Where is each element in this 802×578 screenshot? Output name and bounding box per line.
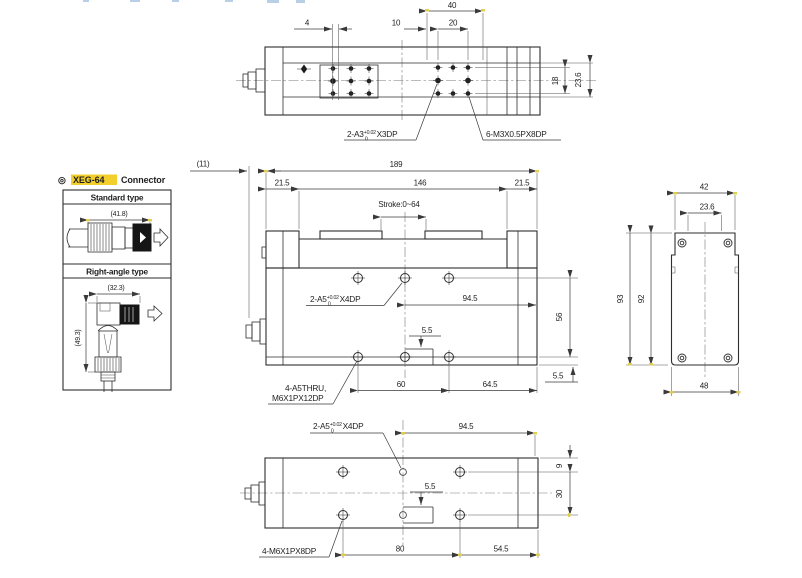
top-view: 40 4 10 20 18 23.6 2-A3+0.020X3DP 6-M3X0… [236,1,598,143]
bottom-view: 2-A5+0.020X4DP 94.5 9 30 5.5 80 54.5 4-M… [240,420,578,558]
dim-4: 4 [305,19,310,28]
technical-drawing: 40 4 10 20 18 23.6 2-A3+0.020X3DP 6-M3X0… [0,0,802,578]
front-view: (11) 189 21.5 146 21.5 Stroke:0~64 [190,160,578,405]
label-tapped-holes-m6: 4-M6X1PX8DP [262,546,317,556]
dim-18: 18 [551,76,560,85]
dim-42: 42 [700,183,709,192]
dim-54-5: 54.5 [494,545,510,554]
standard-connector-drawing: (41.8) [67,211,168,252]
double-circle-icon: ◎ [58,175,66,185]
side-view: 42 23.6 93 92 48 [616,183,739,397]
dim-21-5-left: 21.5 [275,179,291,188]
dim-49-3: (49.3) [75,329,82,346]
dim-9: 9 [555,463,564,468]
bottom-holes [336,465,467,522]
connector-panel: ◎ XEG-64 Connector Standard type (41.8) … [58,175,171,393]
drawing-canvas: 40 4 10 20 18 23.6 2-A3+0.020X3DP 6-M3X0… [0,0,802,578]
label-tapped-holes-m3: 6-M3X0.5PX8DP [486,129,547,139]
dim-5-5-bottom: 5.5 [425,482,436,491]
label-thru-holes-line1: 4-A5THRU, [285,383,326,393]
dim-48: 48 [700,382,709,391]
dim-40: 40 [448,1,457,10]
dim-5-5-front: 5.5 [422,326,433,335]
dim-56: 56 [555,312,564,321]
dim-92: 92 [637,294,646,303]
dim-94-5-bottom: 94.5 [459,422,475,431]
dim-21-5-right: 21.5 [515,179,531,188]
dim-5-5-front-right: 5.5 [553,372,564,381]
dim-30: 30 [555,489,564,498]
dim-10: 10 [392,19,401,28]
front-holes [351,271,456,364]
dim-80: 80 [396,545,405,554]
direction-arrow-icon [148,306,162,321]
side-connector-stub-bottom [245,482,265,505]
dim-189: 189 [390,160,403,169]
dim-11: (11) [197,160,210,169]
dim-60: 60 [397,380,406,389]
standard-type-header: Standard type [91,193,144,203]
dim-64-5: 64.5 [483,380,499,389]
dim-20: 20 [449,19,458,28]
dim-94-5-front: 94.5 [463,294,479,303]
right-angle-type-header: Right-angle type [86,267,148,277]
dim-146: 146 [414,179,427,188]
panel-title-rest: Connector [121,175,166,185]
dim-23-6-side: 23.6 [700,203,716,212]
label-dowel-holes-a3: 2-A3+0.020X3DP [347,129,398,143]
dim-41-8: (41.8) [110,211,127,218]
label-thru-holes-line2: M6X1PX12DP [272,393,324,403]
panel-title-model: XEG-64 [73,175,105,185]
side-connector-stub-front [246,319,266,344]
carriage-hole-pattern [328,64,374,98]
right-angle-connector-drawing: (32.3) (49.3) [75,285,162,392]
yellow-endpoint-ticks [86,9,741,556]
dim-32-3: (32.3) [107,285,124,292]
dim-23-6-top: 23.6 [574,72,583,88]
label-dowel-holes-a5-bottom: 2-A5+0.020X4DP [313,421,364,435]
cropped-header-artifact [83,0,305,3]
stroke-label: Stroke:0~64 [378,200,420,209]
direction-arrow-icon [154,229,168,246]
dim-93: 93 [616,294,625,303]
